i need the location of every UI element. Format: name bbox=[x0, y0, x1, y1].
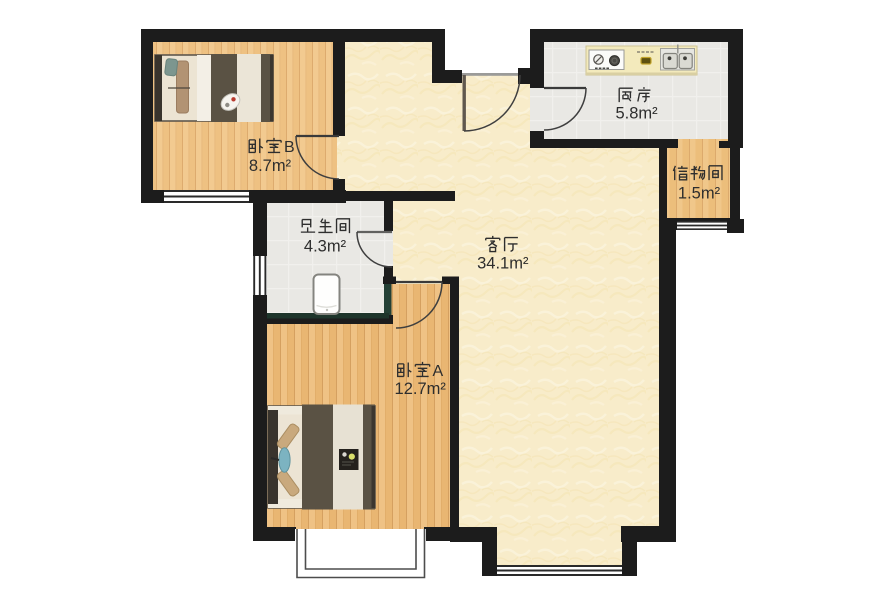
svg-text:34.1m²: 34.1m² bbox=[477, 254, 529, 272]
svg-text:8.7m²: 8.7m² bbox=[249, 157, 292, 175]
svg-text:5.8m²: 5.8m² bbox=[616, 104, 659, 122]
svg-text:4.3m²: 4.3m² bbox=[304, 238, 347, 256]
svg-text:A: A bbox=[433, 363, 444, 380]
svg-text:B: B bbox=[284, 139, 295, 156]
svg-text:12.7m²: 12.7m² bbox=[395, 380, 447, 398]
svg-text:1.5m²: 1.5m² bbox=[678, 184, 721, 202]
